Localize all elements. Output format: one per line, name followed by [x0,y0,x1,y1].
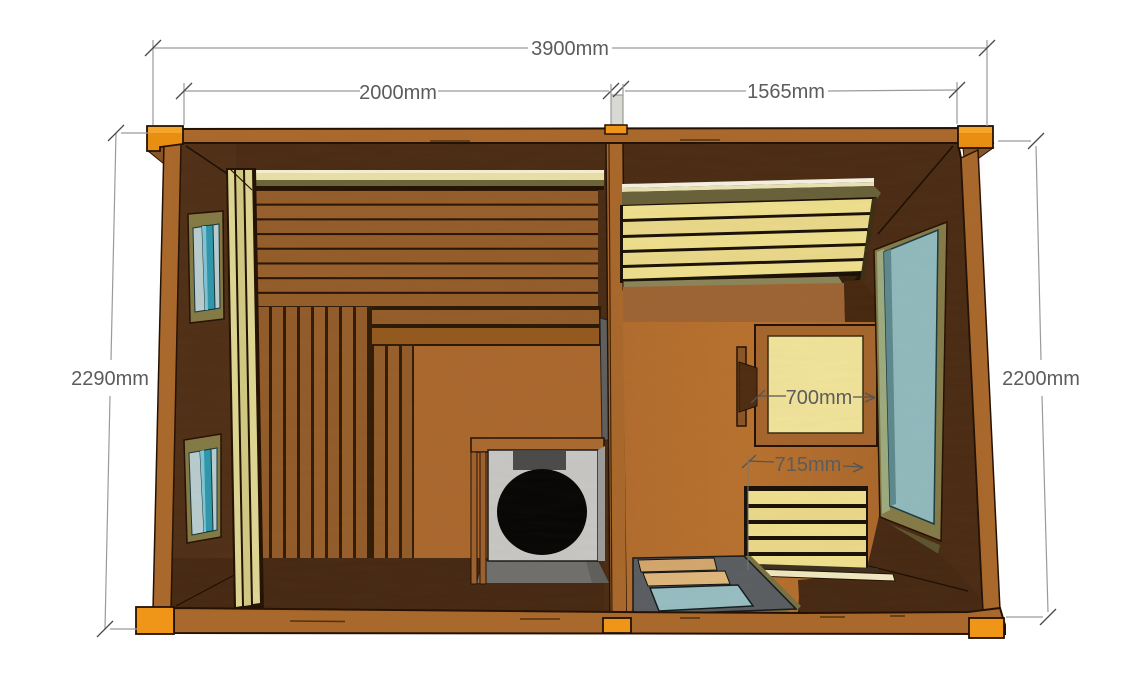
svg-text:2290mm: 2290mm [71,368,149,390]
svg-text:3900mm: 3900mm [531,38,609,60]
svg-text:2000mm: 2000mm [359,82,437,104]
svg-text:700mm: 700mm [786,387,853,409]
svg-text:1565mm: 1565mm [747,81,825,103]
svg-text:715mm: 715mm [775,454,842,476]
svg-text:2200mm: 2200mm [1002,368,1080,390]
